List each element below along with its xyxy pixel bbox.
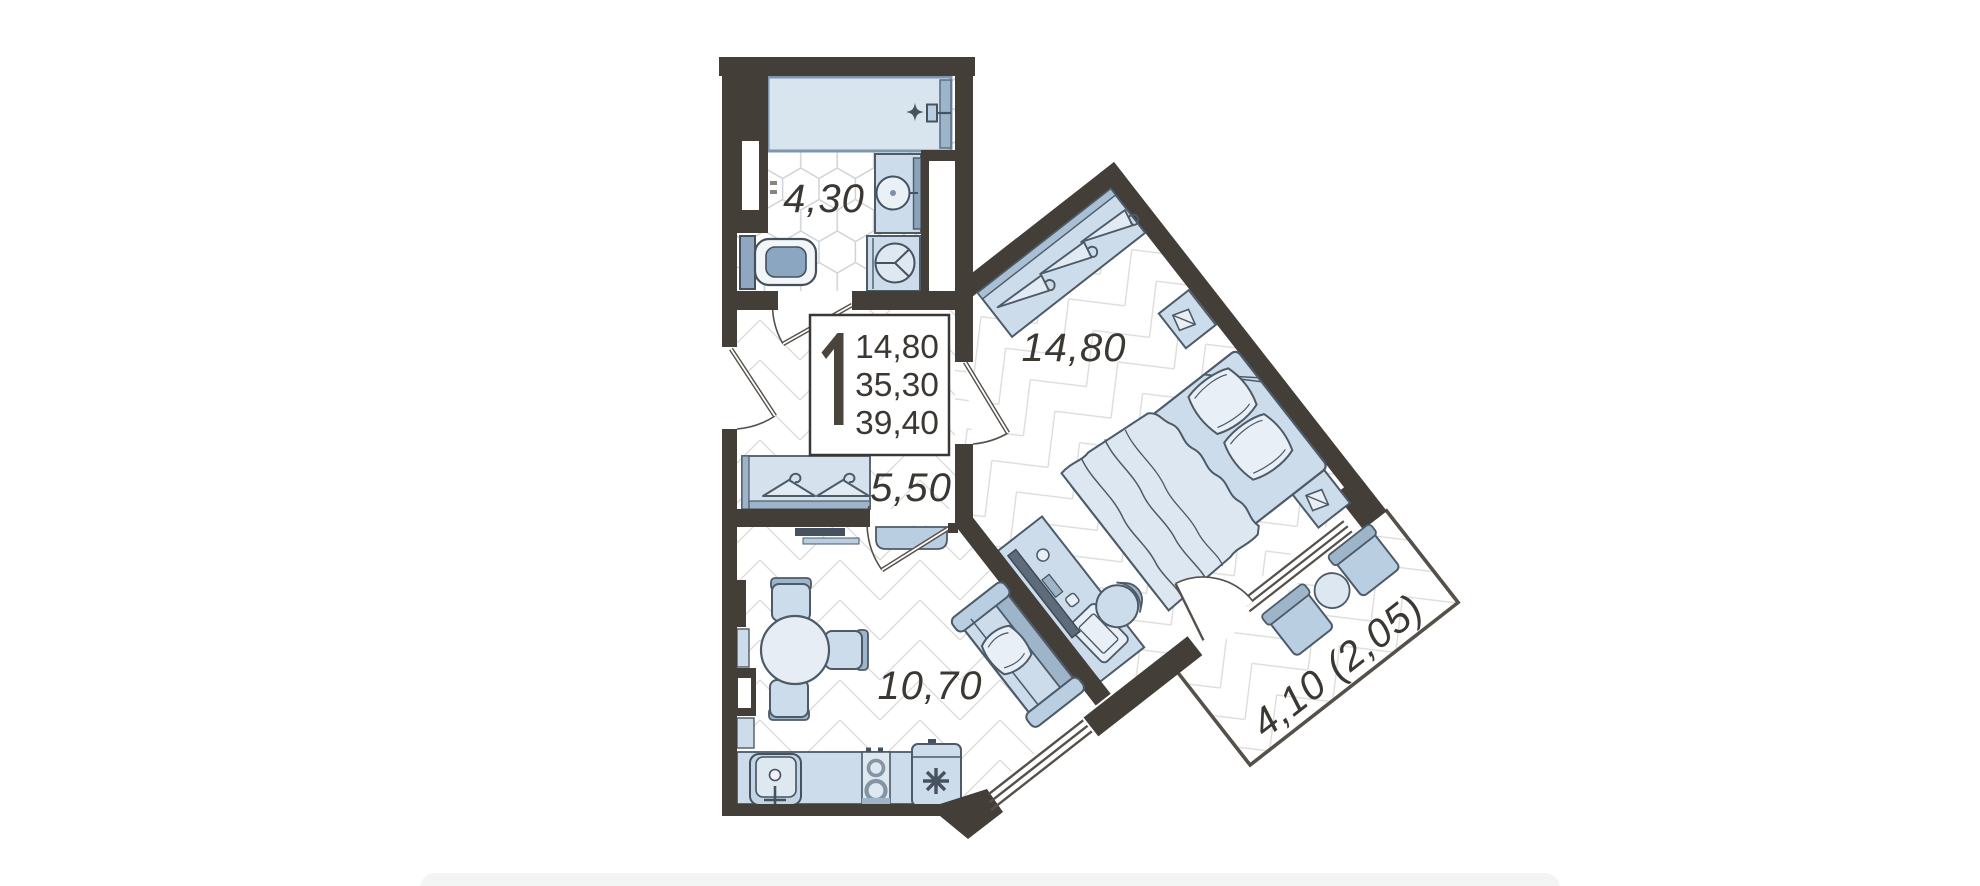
svg-text:39,40: 39,40 xyxy=(855,405,939,442)
svg-text:14,80: 14,80 xyxy=(855,329,939,366)
svg-text:35,30: 35,30 xyxy=(855,367,939,404)
svg-text:14,80: 14,80 xyxy=(1021,326,1126,370)
svg-text:10,70: 10,70 xyxy=(877,664,982,708)
svg-text:5,50: 5,50 xyxy=(870,466,952,510)
svg-text:4,30: 4,30 xyxy=(783,177,865,221)
